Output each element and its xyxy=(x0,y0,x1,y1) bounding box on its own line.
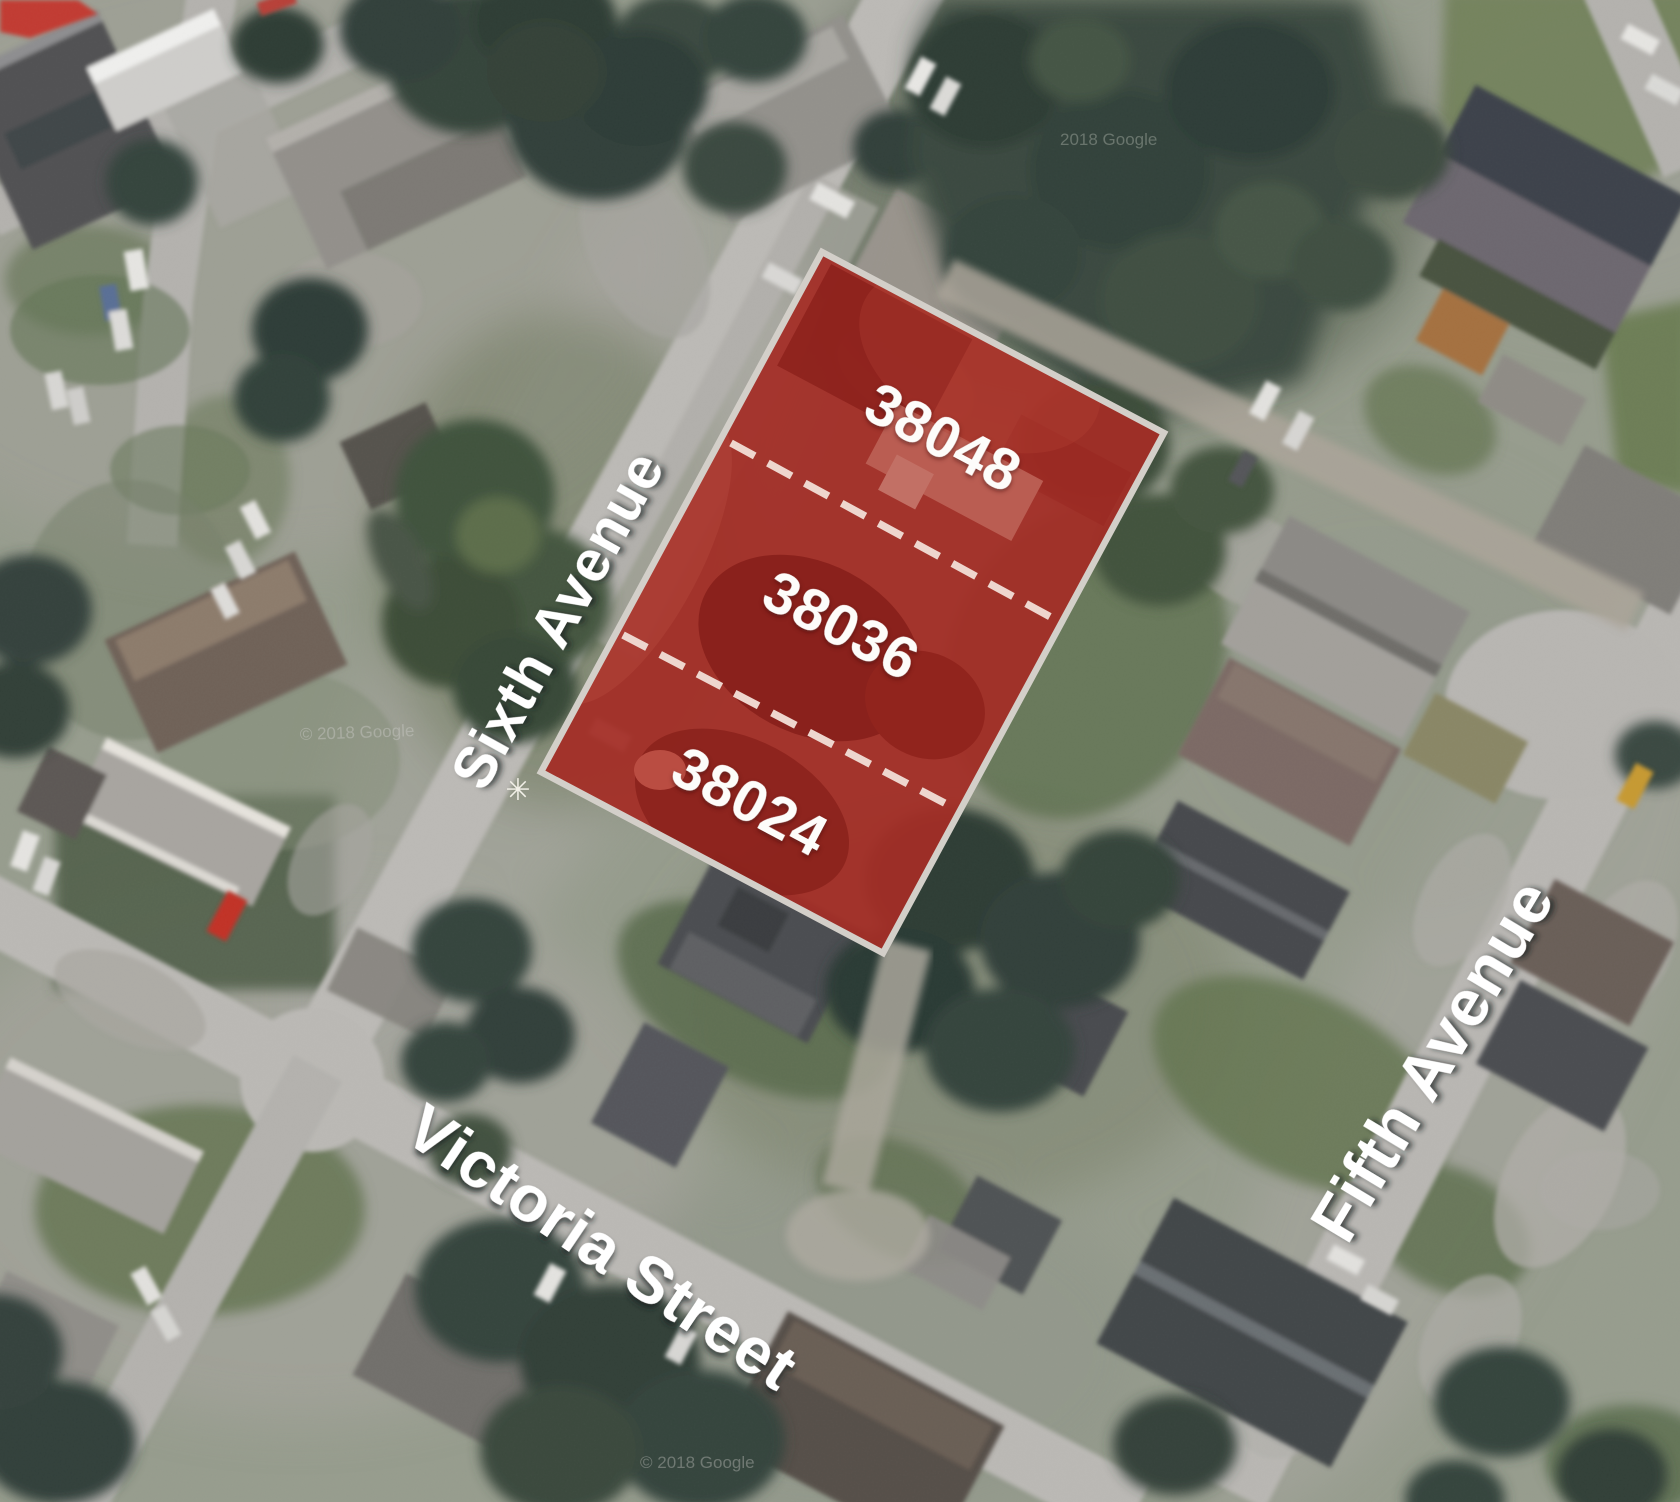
svg-text:© 2018 Google: © 2018 Google xyxy=(640,1453,755,1472)
svg-text:© 2018 Google: © 2018 Google xyxy=(299,721,414,744)
svg-text:2018 Google: 2018 Google xyxy=(1060,130,1157,149)
svg-text:✳: ✳ xyxy=(505,774,530,807)
